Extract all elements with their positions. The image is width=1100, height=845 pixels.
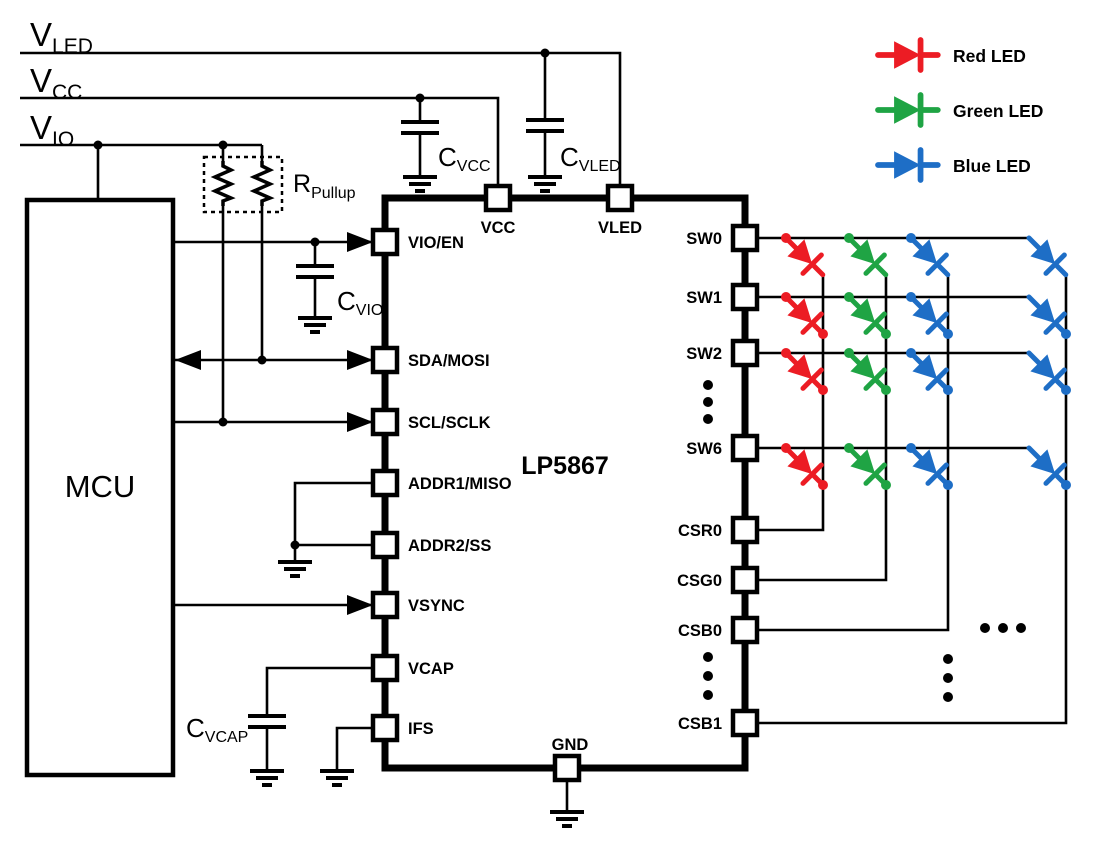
pin-label-vioen: VIO/EN: [408, 234, 464, 252]
schematic-canvas: VLED VCC VIO RPullup MCU: [0, 0, 1100, 845]
cs-ellipsis-dots: [703, 652, 713, 700]
rpullup-label: RPullup: [293, 170, 356, 202]
pin-label-vled: VLED: [598, 219, 642, 237]
pin-square: [373, 656, 397, 680]
pin-square: [555, 756, 579, 780]
pin-label-csg0: CSG0: [677, 572, 722, 590]
ifs-ground-wire: [320, 728, 373, 785]
power-rails: VLED VCC VIO: [20, 16, 620, 200]
pin-label-csb0: CSB0: [678, 622, 722, 640]
pin-square: [733, 568, 757, 592]
capacitor-icon: [401, 122, 439, 133]
pin-label-gnd: GND: [552, 736, 589, 754]
blue-led-icon: [878, 150, 938, 180]
pin-square: [733, 285, 757, 309]
ground-icon: [298, 318, 332, 332]
pin-square: [733, 341, 757, 365]
vcc-rail-wire: [20, 98, 498, 186]
legend-item-blue: Blue LED: [878, 150, 1031, 180]
cvcc-capacitor: CVCC: [401, 94, 491, 192]
pin-label-sw2: SW2: [686, 345, 722, 363]
pin-label-sw6: SW6: [686, 440, 722, 458]
rpullup-resistors: RPullup: [204, 145, 356, 422]
pin-square: [373, 410, 397, 434]
pin-label-vcc: VCC: [481, 219, 516, 237]
cvled-label: CVLED: [560, 142, 621, 175]
mcu-block: MCU: [27, 200, 173, 775]
capacitor-icon: [296, 266, 334, 277]
pin-label-ifs: IFS: [408, 720, 434, 738]
ground-icon: [403, 177, 437, 191]
green-led-icon: [878, 95, 938, 125]
pin-square: [486, 186, 510, 210]
pin-label-addr1-miso: ADDR1/MISO: [408, 475, 512, 493]
resistor-icon: [215, 161, 231, 206]
pin-square: [733, 436, 757, 460]
cvio-capacitor: CVIO: [296, 238, 383, 333]
legend-item-green: Green LED: [878, 95, 1043, 125]
pin-square: [733, 226, 757, 250]
arrow-left-icon: [175, 350, 201, 370]
pin-label-csr0: CSR0: [678, 522, 722, 540]
pin-label-sw1: SW1: [686, 289, 722, 307]
legend-label-blue: Blue LED: [953, 156, 1031, 176]
cvled-capacitor: CVLED: [526, 49, 621, 192]
arrow-right-icon: [347, 595, 373, 615]
capacitor-icon: [526, 120, 564, 131]
pin-square: [373, 471, 397, 495]
addr-ground-wires: [278, 483, 373, 576]
ifs-wire: [337, 728, 373, 771]
pin-square: [608, 186, 632, 210]
pin-label-sda-mosi: SDA/MOSI: [408, 352, 490, 370]
pin-square: [733, 711, 757, 735]
arrow-right-icon: [347, 412, 373, 432]
capacitor-icon: [248, 716, 286, 727]
cvcap-label: CVCAP: [186, 713, 248, 746]
ground-icon: [320, 771, 354, 785]
cvcc-label: CVCC: [438, 142, 491, 175]
arrow-right-icon: [347, 232, 373, 252]
csg0-column-wire: [757, 275, 886, 580]
legend-item-red: Red LED: [878, 40, 1026, 70]
ground-icon: [550, 812, 584, 826]
pin-square: [373, 348, 397, 372]
pin-square: [733, 618, 757, 642]
ground-icon: [278, 562, 312, 576]
cvcap-capacitor: CVCAP: [186, 668, 373, 785]
pin-label-scl-sclk: SCL/SCLK: [408, 414, 491, 432]
junction-dot: [258, 356, 267, 365]
chip-ground: [550, 780, 584, 826]
legend-label-red: Red LED: [953, 46, 1026, 66]
junction-dot: [219, 418, 228, 427]
pin-square: [373, 593, 397, 617]
arrow-right-icon: [347, 350, 373, 370]
red-led-icon: [878, 40, 938, 70]
pin-label-sw0: SW0: [686, 230, 722, 248]
csb1-column-wire: [757, 275, 1066, 723]
legend-label-green: Green LED: [953, 101, 1043, 121]
pin-square: [733, 518, 757, 542]
matrix-h-ellipsis-dots: [980, 623, 1026, 633]
blue-led-icon: [1020, 229, 1075, 284]
resistor-icon: [254, 161, 270, 206]
sw-ellipsis-dots: [703, 380, 713, 424]
mcu-label: MCU: [65, 469, 136, 504]
pin-square: [373, 533, 397, 557]
pin-label-vsync: VSYNC: [408, 597, 465, 615]
pin-square: [373, 230, 397, 254]
lp5867-schematic: VLED VCC VIO RPullup MCU: [0, 0, 1100, 845]
matrix-v-ellipsis-dots: [943, 654, 953, 702]
pin-label-csb1: CSB1: [678, 715, 722, 733]
chip-label: LP5867: [521, 452, 609, 480]
cvio-label: CVIO: [337, 286, 383, 319]
led-matrix: [757, 229, 1075, 723]
ground-icon: [250, 771, 284, 785]
vcap-wire: [267, 668, 373, 716]
addr1-wire: [295, 483, 373, 545]
lp5867-chip: LP5867 VIO/EN SDA/MOSI SCL/SCLK ADDR1/MI…: [373, 186, 757, 780]
led-legend: Red LED Green LED Blue LED: [878, 40, 1043, 180]
pin-square: [373, 716, 397, 740]
ground-icon: [528, 177, 562, 191]
pin-label-vcap: VCAP: [408, 660, 454, 678]
pin-label-addr2-ss: ADDR2/SS: [408, 537, 491, 555]
junction-dot: [94, 141, 103, 150]
